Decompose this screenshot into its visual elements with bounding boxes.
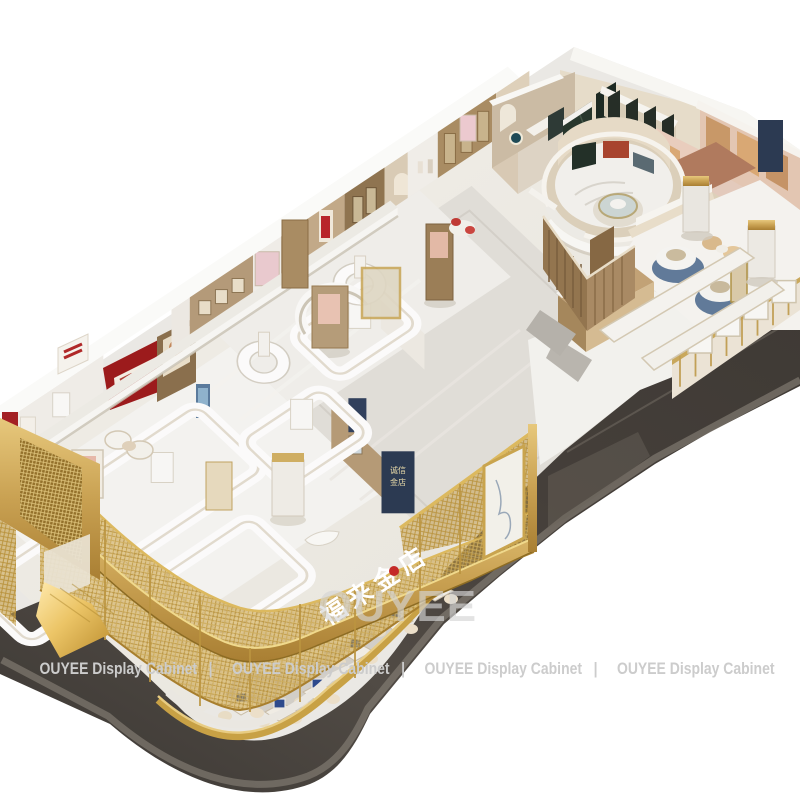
svg-text:OUYEE: OUYEE xyxy=(318,582,477,631)
svg-text:诚信: 诚信 xyxy=(390,465,406,475)
svg-text:金店: 金店 xyxy=(390,477,406,487)
svg-text:OUYEE Display Cabinet |: OUYEE Display Cabinet | OUYEE Display Ca… xyxy=(40,659,775,678)
